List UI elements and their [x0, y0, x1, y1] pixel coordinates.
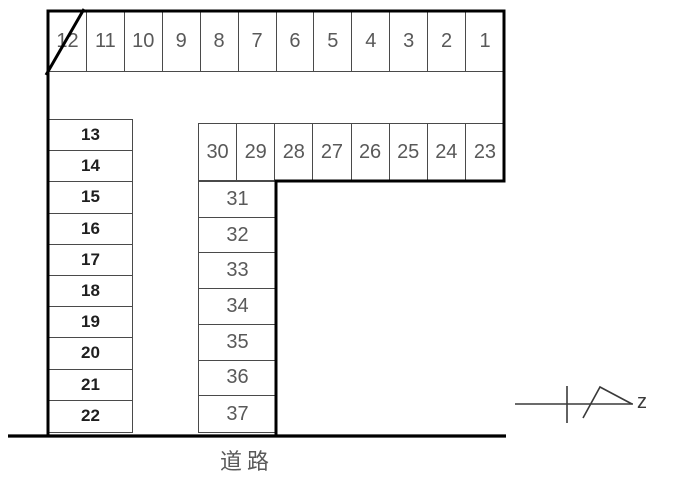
- top-parking-row: 12 11 10 9 8 7 6 5 4 3 2 1: [48, 10, 505, 72]
- parking-lot-diagram: 12 11 10 9 8 7 6 5 4 3 2 1 13 14 15 16 1…: [0, 0, 674, 482]
- parking-space-27: 27: [313, 124, 351, 180]
- road-label: 道路: [220, 444, 274, 476]
- parking-space-25: 25: [390, 124, 428, 180]
- parking-space-13: 13: [49, 120, 132, 151]
- parking-space-17: 17: [49, 245, 132, 276]
- middle-parking-row: 30 29 28 27 26 25 24 23: [198, 123, 505, 181]
- parking-space-32: 32: [199, 218, 276, 254]
- parking-space-3: 3: [390, 11, 428, 71]
- parking-space-23: 23: [466, 124, 504, 180]
- parking-space-21: 21: [49, 370, 132, 401]
- parking-space-18: 18: [49, 276, 132, 307]
- parking-space-35: 35: [199, 325, 276, 361]
- parking-space-28: 28: [275, 124, 313, 180]
- parking-space-4: 4: [352, 11, 390, 71]
- parking-space-31: 31: [199, 182, 276, 218]
- parking-space-29: 29: [237, 124, 275, 180]
- parking-space-8: 8: [201, 11, 239, 71]
- left-parking-column: 13 14 15 16 17 18 19 20 21 22: [48, 119, 133, 433]
- parking-space-5: 5: [314, 11, 352, 71]
- north-arrow-icon: [515, 386, 633, 423]
- parking-space-12: 12: [49, 11, 87, 71]
- parking-space-24: 24: [428, 124, 466, 180]
- north-arrow-label: z: [637, 391, 647, 414]
- parking-space-9: 9: [163, 11, 201, 71]
- parking-space-7: 7: [239, 11, 277, 71]
- parking-space-6: 6: [277, 11, 315, 71]
- parking-space-14: 14: [49, 151, 132, 182]
- parking-space-16: 16: [49, 214, 132, 245]
- parking-space-1: 1: [466, 11, 504, 71]
- parking-space-10: 10: [125, 11, 163, 71]
- parking-space-26: 26: [352, 124, 390, 180]
- parking-space-19: 19: [49, 307, 132, 338]
- parking-space-20: 20: [49, 338, 132, 369]
- parking-space-33: 33: [199, 253, 276, 289]
- parking-space-11: 11: [87, 11, 125, 71]
- parking-space-36: 36: [199, 361, 276, 397]
- parking-space-22: 22: [49, 401, 132, 432]
- parking-space-15: 15: [49, 182, 132, 213]
- parking-space-34: 34: [199, 289, 276, 325]
- parking-space-2: 2: [428, 11, 466, 71]
- lower-parking-column: 31 32 33 34 35 36 37: [198, 181, 277, 433]
- parking-space-30: 30: [199, 124, 237, 180]
- parking-space-37: 37: [199, 396, 276, 432]
